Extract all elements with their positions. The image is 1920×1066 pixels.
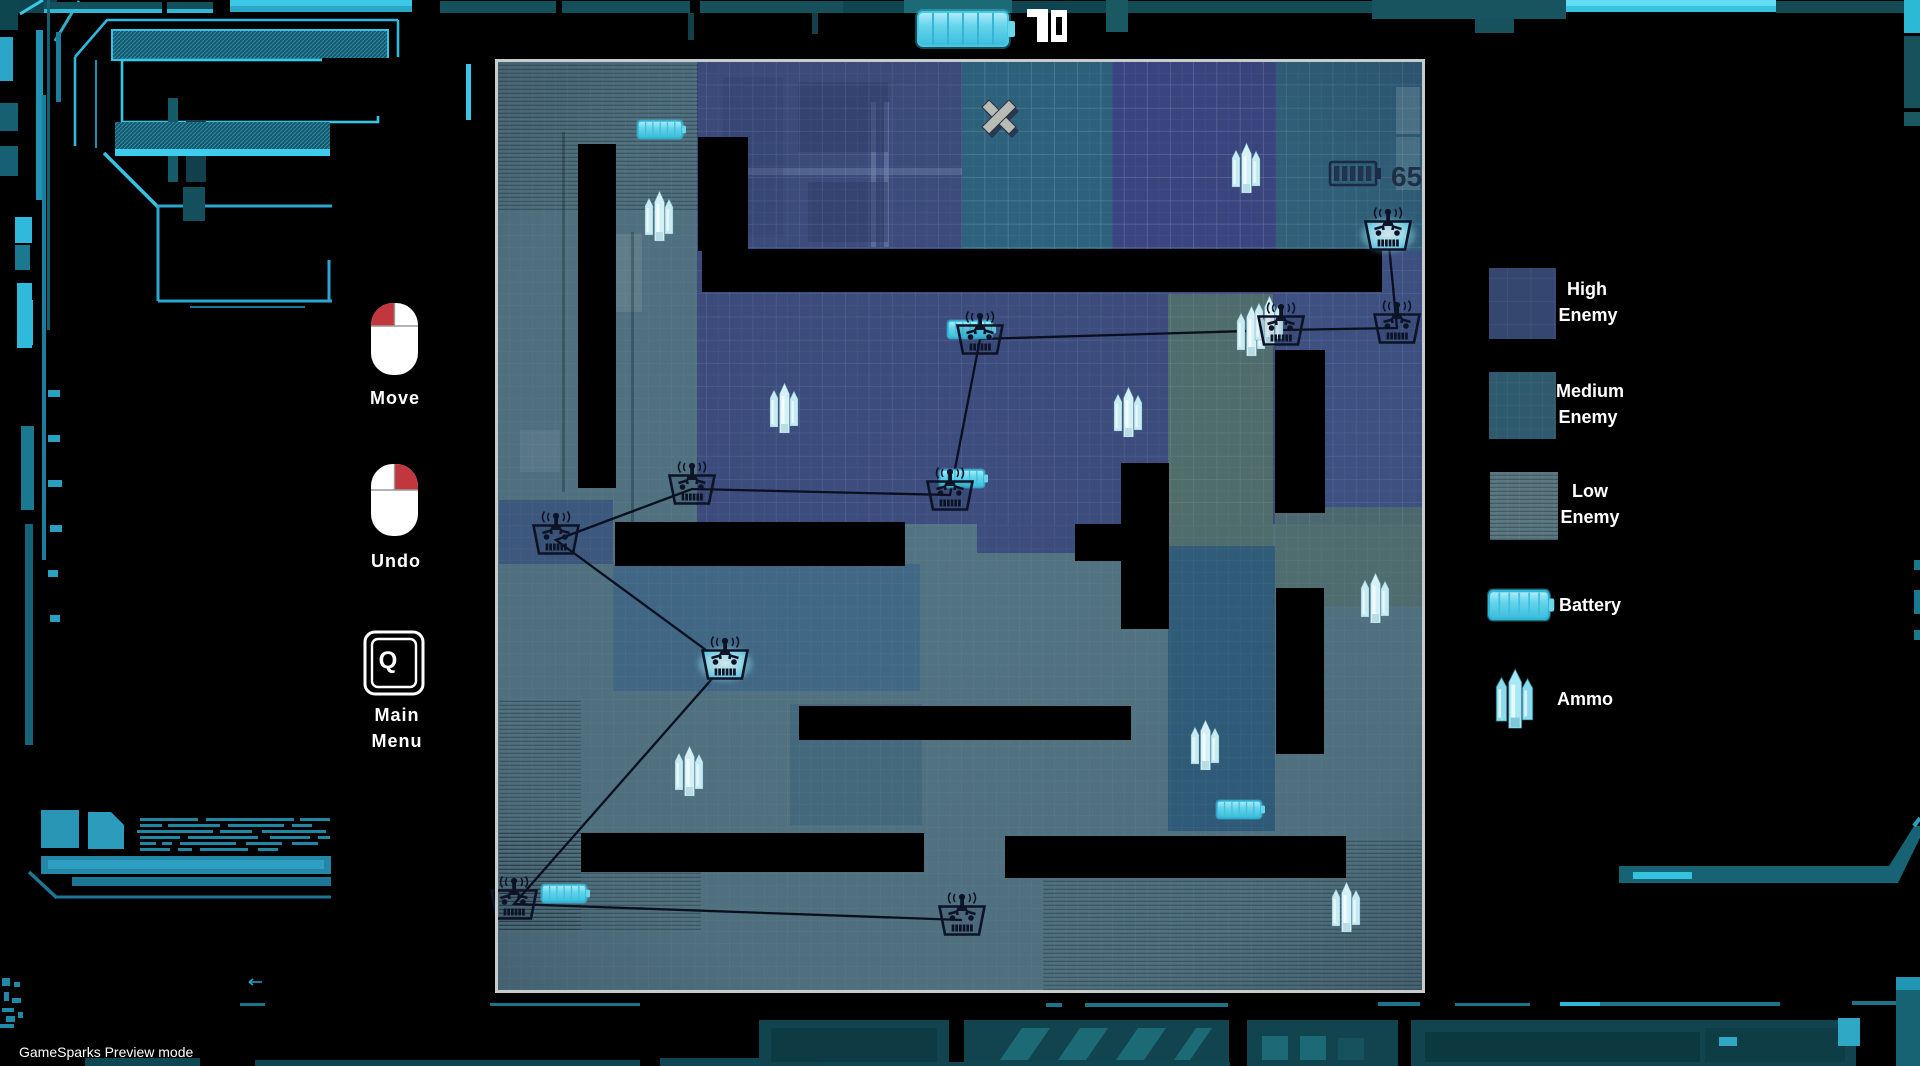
svg-text:Low: Low	[1572, 481, 1609, 501]
svg-text:Medium: Medium	[1556, 381, 1624, 401]
svg-text:Enemy: Enemy	[1558, 305, 1617, 325]
svg-text:High: High	[1567, 279, 1607, 299]
svg-text:Enemy: Enemy	[1560, 507, 1619, 527]
svg-text:Main: Main	[374, 705, 419, 725]
svg-text:GameSparks Preview mode: GameSparks Preview mode	[19, 1044, 194, 1060]
svg-text:Enemy: Enemy	[1558, 407, 1617, 427]
svg-text:Q: Q	[379, 647, 398, 674]
svg-text:Menu: Menu	[372, 731, 423, 751]
svg-text:Undo: Undo	[371, 551, 421, 571]
svg-text:Battery: Battery	[1559, 595, 1621, 615]
svg-text:65: 65	[1391, 161, 1422, 192]
svg-text:Move: Move	[370, 388, 420, 408]
svg-text:Ammo: Ammo	[1557, 689, 1613, 709]
